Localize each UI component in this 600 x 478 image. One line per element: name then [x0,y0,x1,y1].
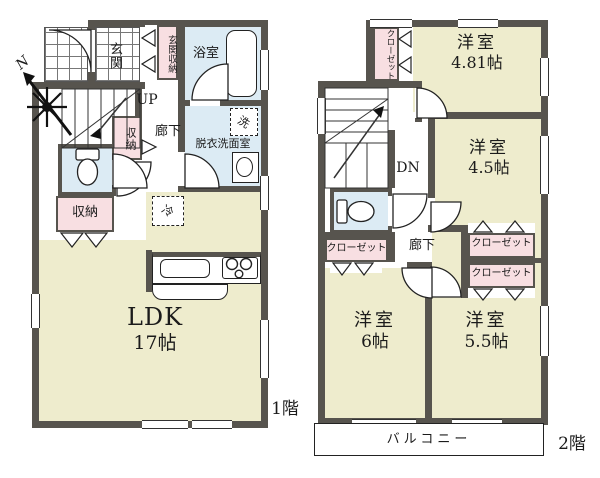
door-gap-55 [425,267,432,295]
window [260,320,269,378]
door-gap-entrance [88,30,95,72]
closet-left-label: クローゼット [326,243,387,255]
washbasin-bowl [236,157,253,177]
ldk-label: LDK 17帖 [75,303,235,355]
door-gap-45 [428,198,435,228]
room-6-size: 6帖 [325,332,425,352]
door-gap-481 [415,88,422,118]
compass-north-label: N [10,51,36,77]
room-45-size: 4.5帖 [437,158,541,177]
storage-lower-label: 収納 [58,205,112,221]
bath-label: 浴室 [186,46,226,62]
floor1-label: 1階 [263,399,307,419]
room-481-size: 4.81帖 [413,53,541,72]
balcony: バルコニー [314,423,544,456]
door-gap-laundry [178,152,185,186]
window [142,420,188,429]
wall-step-f2 [318,81,422,88]
washer-label: 洗 [235,112,253,132]
window [458,19,498,28]
laundry-label: 脱衣洗面室 [185,137,261,150]
wall-porch-bottom [32,82,145,89]
entrance-porch-tiles [44,27,88,82]
closet-left-bifold-strip [330,262,382,273]
corridor-f1-label: 廊下 [150,124,186,140]
room-45-label: 洋室 4.5帖 [437,138,541,178]
storage-upper-label: 収納 [118,124,136,154]
room-55-name: 洋室 [432,310,541,332]
kitchen-stove [222,257,258,279]
toilet2-door-arc [393,194,427,228]
wall-upperleft-f2 [366,20,373,88]
toilet-room-f1 [58,144,116,196]
window [370,19,412,28]
window [31,294,40,328]
wall-closetleft-right [388,232,395,262]
wall-stairs2-stub [388,130,395,188]
genkan-storage-label: 玄関収納 [159,28,176,79]
fridge-label: 冷 [159,201,177,221]
wall-laundry-bottom [178,186,261,192]
room-45-name: 洋室 [437,138,541,158]
closet-right-upper-label: クローゼット [469,238,534,250]
closet-rl-bifold-strip [468,288,535,298]
room-481-name: 洋室 [413,33,541,53]
window [540,58,549,96]
window [260,176,269,210]
stairs-f1-arrowhead [90,128,101,139]
wall-hall-stub [407,262,432,269]
washbasin [232,152,259,183]
room-481-label: 洋室 4.81帖 [413,33,541,73]
door-gap-toilet-f2 [388,196,392,226]
stairs-up-label: UP [130,92,164,109]
balcony-label: バルコニー [387,432,472,448]
room-55-size: 5.5帖 [432,332,541,352]
stairs-f2-arrowhead [373,106,384,118]
wall-left-f1 [32,82,39,428]
room-6-name: 洋室 [325,310,425,332]
window [540,136,549,194]
window [317,98,326,134]
ldk-name: LDK [75,303,235,332]
wall-481-45 [428,112,541,119]
stairs-f2 [325,88,388,188]
closet-top-door-mark [399,57,411,73]
window [540,306,549,356]
room-55-label: 洋室 5.5帖 [432,310,541,352]
ldk-size: 17帖 [75,332,235,355]
ldk-door-arc [117,162,151,196]
closet-top-label: クローゼット [377,29,394,80]
toilet-room-f2 [330,188,392,234]
closet-ru-bifold-strip [468,223,535,233]
closet-right-lower-label: クローゼット [469,268,534,280]
bathtub [226,30,257,97]
floor2-label: 2階 [550,434,594,454]
washer-space: 洗 [230,108,258,136]
stairs-down-label: DN [391,160,425,177]
kitchen-island [152,284,228,300]
genkan-storage-door-strip [145,25,157,80]
kitchen-sink [160,259,210,278]
floorplan-canvas: 洗 冷 [0,0,600,478]
room-6-label: 洋室 6帖 [325,310,425,352]
corridor-f2-label: 廊下 [402,238,442,254]
window [192,420,232,429]
storage-upper-door-mark [142,140,156,154]
window [260,50,269,90]
door-gap-bath [190,100,220,106]
closet-top-door-mark [399,31,411,47]
genkan-label: 玄関 [103,31,121,81]
fridge-space: 冷 [152,196,184,226]
